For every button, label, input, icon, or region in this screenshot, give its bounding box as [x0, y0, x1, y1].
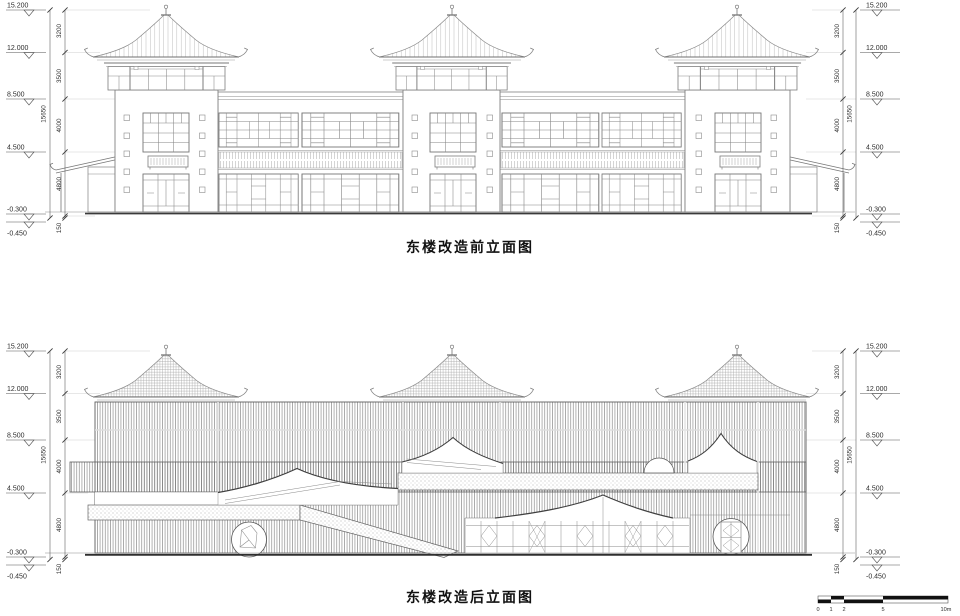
svg-text:12.000: 12.000: [7, 386, 29, 393]
svg-text:4000: 4000: [56, 118, 63, 133]
svg-text:15.200: 15.200: [866, 344, 888, 351]
svg-text:5: 5: [881, 607, 884, 613]
tower-roof-after-center: [371, 345, 534, 400]
svg-text:12.000: 12.000: [866, 386, 888, 393]
elevation-drawings-canvas: 15.200 12.000 8.500 4.500 -0.300 -0.450 …: [0, 0, 960, 616]
svg-text:0: 0: [816, 607, 819, 613]
svg-text:8.500: 8.500: [7, 92, 25, 99]
svg-text:3200: 3200: [56, 365, 63, 380]
moon-gate-left: [232, 522, 267, 557]
svg-text:4.500: 4.500: [7, 486, 25, 493]
dimension-stack-after-right: 3200 3500 4000 4800 150 15650 15.200 12.…: [834, 344, 900, 581]
svg-text:10m: 10m: [941, 607, 952, 613]
svg-text:4800: 4800: [834, 177, 841, 192]
svg-text:4000: 4000: [834, 459, 841, 474]
wing-right: [500, 92, 685, 212]
svg-text:-0.450: -0.450: [866, 231, 886, 238]
svg-text:4000: 4000: [56, 459, 63, 474]
svg-text:3500: 3500: [56, 409, 63, 424]
dimension-stack-before-left: 15.200 12.000 8.500 4.500 -0.300 -0.450 …: [6, 3, 68, 238]
upper-walkway: [398, 473, 758, 490]
porch-right: [788, 157, 855, 213]
svg-text:3500: 3500: [56, 69, 63, 84]
svg-text:-0.300: -0.300: [7, 550, 27, 557]
drawing-title-after: 东楼改造后立面图: [406, 589, 534, 605]
svg-text:150: 150: [56, 563, 63, 574]
dimension-stack-after-left: 15.200 12.000 8.500 4.500 -0.300 -0.450 …: [6, 344, 68, 581]
svg-text:12.000: 12.000: [866, 45, 888, 52]
svg-text:-0.450: -0.450: [866, 574, 886, 581]
svg-text:-0.300: -0.300: [7, 207, 27, 214]
svg-text:4800: 4800: [834, 518, 841, 533]
svg-text:15650: 15650: [41, 105, 48, 123]
svg-text:-0.450: -0.450: [7, 231, 27, 238]
svg-text:4.500: 4.500: [7, 145, 25, 152]
svg-text:4000: 4000: [834, 118, 841, 133]
svg-text:2: 2: [842, 607, 845, 613]
svg-text:4800: 4800: [56, 177, 63, 192]
svg-text:8.500: 8.500: [866, 433, 884, 440]
svg-text:3500: 3500: [834, 69, 841, 84]
svg-text:1: 1: [829, 607, 832, 613]
tower-roof: [85, 5, 248, 60]
tower-roof-after-left: [85, 345, 248, 400]
tower-roof-after-right: [656, 345, 819, 400]
svg-text:4800: 4800: [56, 518, 63, 533]
elevation-before: 15.200 12.000 8.500 4.500 -0.300 -0.450 …: [6, 3, 900, 256]
wing-left: [218, 92, 403, 212]
scale-bar: 0 1 2 5 10m: [816, 596, 951, 613]
svg-text:15.200: 15.200: [7, 3, 29, 10]
svg-text:8.500: 8.500: [7, 433, 25, 440]
ground-line-after: [45, 553, 855, 555]
svg-text:3200: 3200: [834, 24, 841, 39]
svg-text:3500: 3500: [834, 409, 841, 424]
architectural-drawing-sheet: 15.200 12.000 8.500 4.500 -0.300 -0.450 …: [0, 0, 960, 616]
svg-text:150: 150: [834, 222, 841, 233]
svg-text:150: 150: [56, 222, 63, 233]
svg-text:15650: 15650: [847, 446, 854, 464]
svg-text:-0.450: -0.450: [7, 574, 27, 581]
drawing-title-before: 东楼改造前立面图: [406, 239, 534, 255]
svg-text:15650: 15650: [847, 105, 854, 123]
svg-text:15.200: 15.200: [866, 3, 888, 10]
svg-text:150: 150: [834, 563, 841, 574]
svg-text:4.500: 4.500: [866, 486, 884, 493]
clerestory-band: [104, 63, 229, 90]
elevation-after: 15.200 12.000 8.500 4.500 -0.300 -0.450 …: [6, 344, 900, 606]
svg-text:-0.300: -0.300: [866, 207, 886, 214]
lower-walkway: [88, 505, 300, 520]
svg-text:15650: 15650: [41, 446, 48, 464]
ground-line-before: [45, 212, 855, 214]
svg-text:3200: 3200: [56, 24, 63, 39]
svg-text:-0.300: -0.300: [866, 550, 886, 557]
svg-text:8.500: 8.500: [866, 92, 884, 99]
svg-text:3200: 3200: [834, 365, 841, 380]
svg-text:12.000: 12.000: [7, 45, 29, 52]
svg-text:15.200: 15.200: [7, 344, 29, 351]
svg-text:4.500: 4.500: [866, 145, 884, 152]
